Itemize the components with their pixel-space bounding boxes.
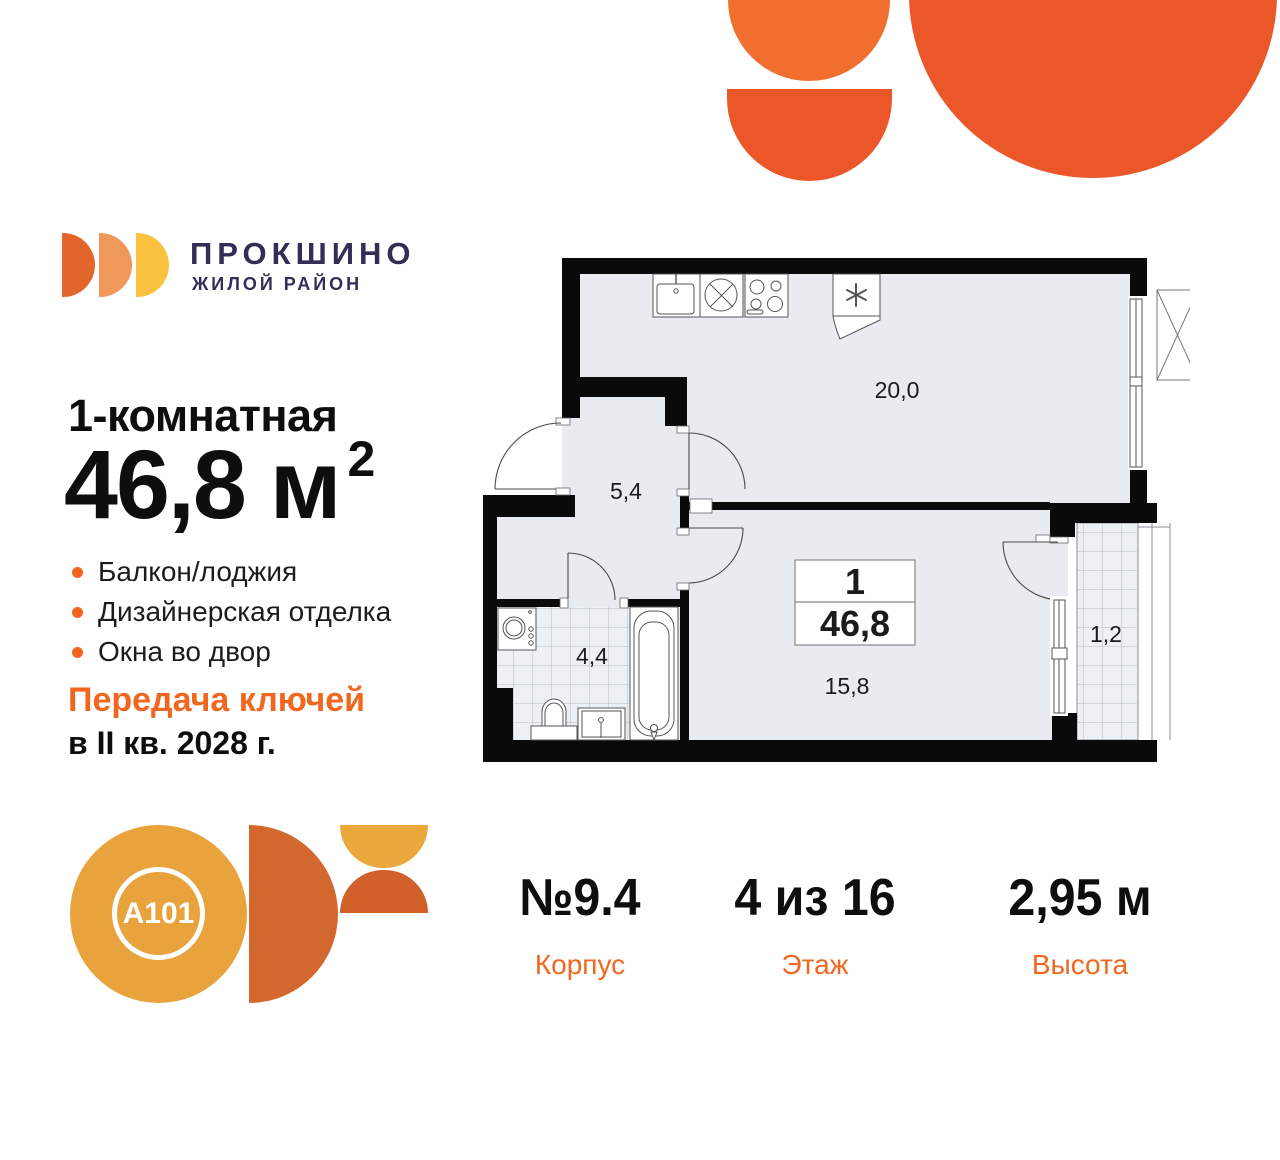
a101-ring-label: A101 bbox=[112, 867, 205, 960]
stat-height-label: Высота bbox=[960, 949, 1200, 981]
laundry-machine-icon bbox=[498, 608, 536, 650]
handover-line-2: в II кв. 2028 г. bbox=[68, 725, 276, 762]
a101-halfcircle-icon bbox=[249, 825, 338, 1003]
deco-halfcircle-small-top bbox=[728, 0, 890, 81]
room-label-hall: 5,4 bbox=[610, 478, 642, 504]
deco-circle-large bbox=[909, 0, 1277, 178]
floorplan-svg: 1 46,8 20,0 5,4 4,4 15,8 1,2 bbox=[470, 250, 1190, 770]
brand-name: ПРОКШИНО bbox=[190, 236, 416, 272]
feature-item: Балкон/лоджия bbox=[72, 552, 391, 592]
brand-arc-1-icon bbox=[62, 233, 95, 297]
stat-building: №9.4 Корпус bbox=[460, 870, 700, 981]
brand-arc-3-icon bbox=[136, 233, 169, 297]
washing-machine-kitchen-icon bbox=[700, 274, 743, 317]
brand-arc-2-icon bbox=[99, 233, 132, 297]
stat-building-label: Корпус bbox=[460, 949, 700, 981]
exterior-window-box bbox=[1157, 290, 1190, 380]
entrance-door-arc bbox=[495, 423, 561, 489]
unit-rooms-count: 1 bbox=[845, 561, 865, 602]
deco-halfcircle-small-bottom bbox=[727, 89, 892, 181]
feature-list: Балкон/лоджия Дизайнерская отделка Окна … bbox=[72, 552, 391, 672]
stat-height: 2,95 м Высота bbox=[960, 870, 1200, 981]
room-label-bathroom: 4,4 bbox=[576, 643, 608, 669]
feature-label: Балкон/лоджия bbox=[98, 556, 297, 588]
area-number: 46,8 м bbox=[64, 430, 340, 539]
stat-height-value: 2,95 м bbox=[968, 870, 1191, 927]
living-window bbox=[1128, 296, 1147, 470]
bathtub-icon bbox=[630, 607, 678, 740]
bullet-icon bbox=[72, 567, 83, 578]
stat-building-value: №9.4 bbox=[468, 870, 691, 927]
handover-line-1: Передача ключей bbox=[68, 681, 365, 720]
bullet-icon bbox=[72, 607, 83, 618]
stove-icon bbox=[745, 274, 788, 317]
a101-small-orange-icon bbox=[340, 870, 428, 913]
vanity-sink-icon bbox=[578, 708, 625, 740]
stat-floor: 4 из 16 Этаж bbox=[695, 870, 935, 981]
stat-floor-value: 4 из 16 bbox=[703, 870, 926, 927]
room-label-balcony: 1,2 bbox=[1090, 621, 1122, 647]
area-value: 46,8 м2 bbox=[64, 434, 375, 536]
unit-info-box: 1 46,8 bbox=[795, 560, 915, 645]
room-label-bedroom: 15,8 bbox=[825, 673, 870, 699]
room-label-kitchen: 20,0 bbox=[875, 377, 920, 403]
flyer-page: { "brand": { "name": "ПРОКШИНО", "taglin… bbox=[0, 0, 1280, 1160]
stat-floor-label: Этаж bbox=[695, 949, 935, 981]
unit-area-value: 46,8 bbox=[820, 603, 890, 644]
feature-item: Дизайнерская отделка bbox=[72, 592, 391, 632]
kitchen-sink-icon bbox=[653, 274, 700, 317]
a101-small-yellow-icon bbox=[340, 825, 428, 868]
bedroom-window bbox=[1050, 596, 1068, 716]
bullet-icon bbox=[72, 647, 83, 658]
balcony-glazing bbox=[1138, 523, 1170, 740]
feature-label: Окна во двор bbox=[98, 636, 271, 668]
area-superscript: 2 bbox=[348, 431, 376, 487]
feature-item: Окна во двор bbox=[72, 632, 391, 672]
feature-label: Дизайнерская отделка bbox=[98, 596, 391, 628]
brand-tagline: ЖИЛОЙ РАЙОН bbox=[192, 274, 362, 295]
